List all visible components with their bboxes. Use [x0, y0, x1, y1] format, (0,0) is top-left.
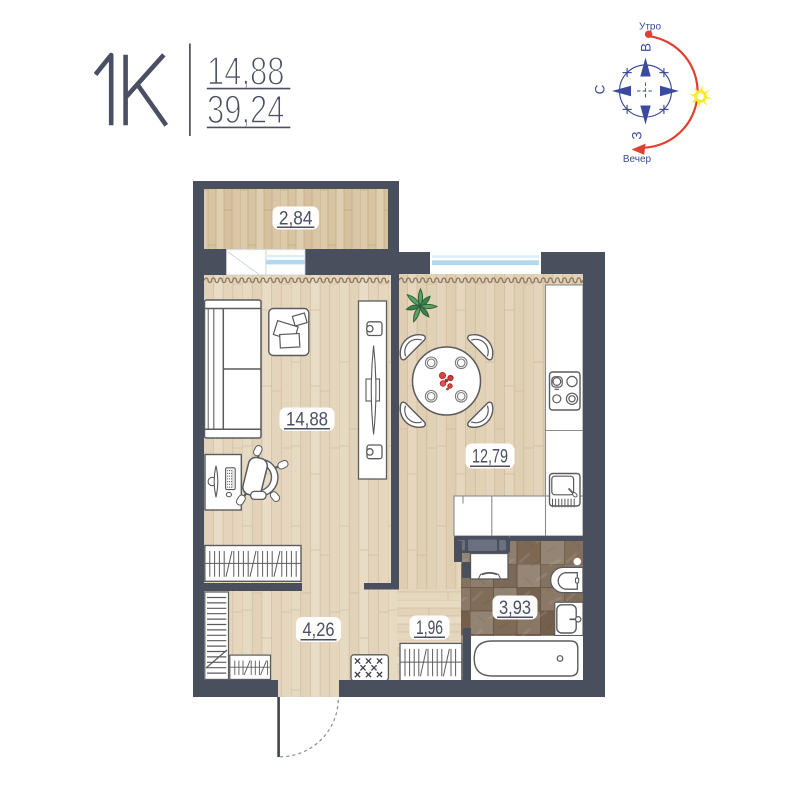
- svg-text:В: В: [639, 43, 654, 52]
- svg-text:1,96: 1,96: [416, 618, 443, 639]
- svg-text:39,24: 39,24: [207, 88, 285, 132]
- svg-text:З: З: [630, 131, 645, 139]
- svg-text:3,93: 3,93: [499, 598, 531, 619]
- svg-text:4,26: 4,26: [303, 620, 335, 641]
- svg-text:Утро: Утро: [639, 22, 661, 33]
- svg-text:2,84: 2,84: [279, 208, 313, 229]
- svg-text:С: С: [593, 84, 608, 94]
- svg-text:12,79: 12,79: [472, 446, 508, 467]
- svg-text:Вечер: Вечер: [623, 154, 652, 165]
- svg-text:14,88: 14,88: [286, 410, 328, 431]
